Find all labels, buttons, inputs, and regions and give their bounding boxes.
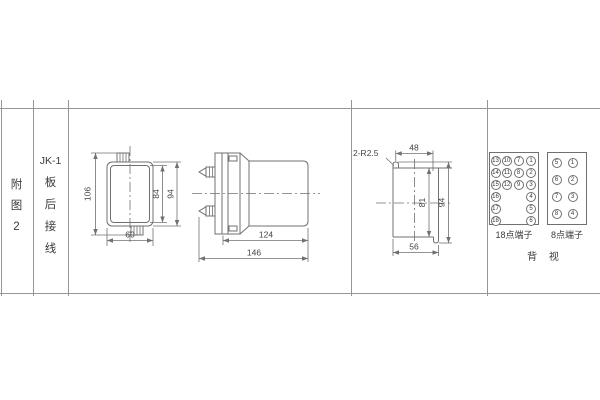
arrowhead [147,238,153,242]
terminal-18-label: 18点端子 [487,228,541,241]
drawing-sheet: 106 84 94 60 [0,0,600,400]
terminal-screw-nut [206,206,215,216]
figure-char: 图 [11,200,23,212]
figure-char: 附 [11,179,23,191]
terminal-screw-tip [199,207,206,215]
front-view-drawing: 106 84 94 60 [83,146,182,246]
terminal-point: 2 [526,168,536,178]
terminal-point: 6 [526,216,536,226]
connector-tab [229,156,237,161]
terminal-point: 14 [491,168,501,178]
arrowhead [223,238,229,242]
arrowhead [446,162,450,168]
wiring-char: 线 [45,243,57,255]
terminal-point: 15 [491,180,501,190]
wiring-char: 后 [45,199,57,211]
arrowhead [393,250,399,254]
dim-bottom-width: 56 [409,242,419,252]
terminal-point: 17 [491,204,501,214]
terminal-point: 8 [552,209,562,219]
arrowhead [396,151,402,155]
wiring-title-cell: JK-1 板 后 接 线 [33,108,68,293]
figure-number-cell: 附 图 2 [0,108,33,293]
terminal-point: 3 [526,180,536,190]
terminal-point: 6 [552,175,562,185]
arrowhead [175,162,179,168]
panel-cutout-drawing: 2-R2.5 48 81 94 56 [353,143,452,257]
figure-char: 2 [13,221,19,233]
terminal-point: 9 [514,180,524,190]
terminal-point: 12 [502,180,512,190]
arrowhead [427,168,431,174]
arrowhead [160,217,164,223]
connector-tab [229,226,237,231]
dim-overall-depth: 146 [247,248,261,258]
terminal-point: 7 [514,156,524,166]
wiring-char: 板 [45,177,57,189]
terminal-point: 8 [514,168,524,178]
wiring-char: 接 [45,221,57,233]
dim-top-width: 48 [409,143,419,153]
arrowhead [199,256,205,260]
arrowhead [302,238,308,242]
terminal-point: 4 [568,209,578,219]
dim-case-height: 94 [166,189,176,199]
rear-view-label: 背 视 [503,248,583,263]
side-view-drawing: 124 146 [192,153,320,262]
arrowhead [433,250,439,254]
terminal-point: 1 [526,156,536,166]
terminal-point: 16 [491,192,501,202]
dim-width: 60 [125,230,135,240]
arrowhead [160,166,164,172]
terminal-screw-tip [199,168,206,176]
arrowhead [175,220,179,226]
dim-body-depth: 124 [259,230,273,240]
model-label: JK-1 [40,155,62,167]
terminal-point: 13 [491,156,501,166]
arrowhead [427,151,433,155]
terminal-screw-nut [206,167,215,177]
dim-inner-height: 84 [151,189,161,199]
dim-inner-height: 81 [417,198,427,208]
terminal-point: 4 [526,192,536,202]
arrowhead [107,238,113,242]
dim-overall-height: 94 [437,198,447,208]
dim-holes-callout: 2-R2.5 [353,148,379,158]
terminal-point: 2 [568,175,578,185]
terminal-point: 7 [552,192,562,202]
terminal-point: 5 [552,158,562,168]
terminal-point: 18 [491,216,501,226]
arrowhead [446,237,450,243]
terminal-point: 11 [502,168,512,178]
arrowhead [302,256,308,260]
terminal-point: 5 [526,204,536,214]
leader-line [386,158,394,166]
arrowhead [93,229,97,235]
bevel-line [240,153,249,161]
terminal-point: 3 [568,192,578,202]
dim-overall-height: 106 [83,187,93,201]
terminal-8-label: 8点端子 [541,228,593,241]
arrowhead [93,153,97,159]
terminal-point: 1 [568,158,578,168]
bevel-line [240,226,249,234]
terminal-point: 10 [502,156,512,166]
arrowhead [427,231,431,237]
